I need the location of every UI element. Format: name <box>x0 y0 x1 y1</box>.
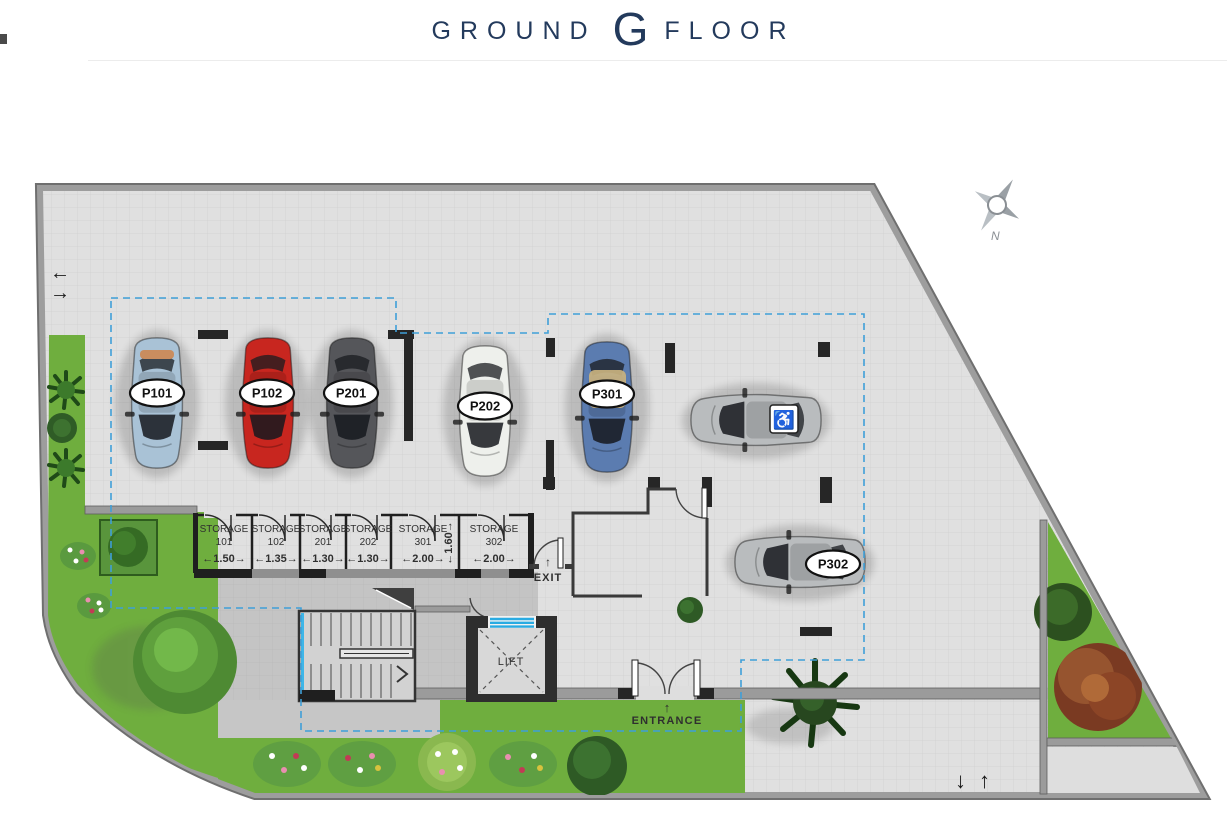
svg-text:←1.50→: ←1.50→ <box>202 553 245 565</box>
svg-text:P201: P201 <box>336 386 366 401</box>
entrance-door-leaf-right <box>694 660 700 696</box>
flower-cluster-1 <box>253 741 321 787</box>
entrance-label: ENTRANCE <box>632 715 703 727</box>
ramp-down-arrow: ↓ <box>955 768 966 793</box>
svg-text:P102: P102 <box>252 386 282 401</box>
svg-text:←1.30→: ←1.30→ <box>301 553 344 565</box>
title-ground: GROUND <box>431 17 596 46</box>
drive-in-arrow: ← <box>50 262 70 284</box>
svg-text:←1.60→: ←1.60→ <box>443 521 455 564</box>
svg-text:STORAGE: STORAGE <box>200 524 249 535</box>
svg-text:STORAGE: STORAGE <box>252 524 301 535</box>
lift: LIFT <box>466 616 557 702</box>
title-g-letter: G <box>613 6 649 52</box>
svg-text:←2.00→: ←2.00→ <box>472 553 515 565</box>
patio-paving <box>218 700 440 738</box>
svg-text:STORAGE: STORAGE <box>344 524 393 535</box>
flower-bed-west-1 <box>60 542 96 570</box>
compass-rose: N <box>959 166 1035 244</box>
svg-text:202: 202 <box>360 537 377 548</box>
svg-text:STORAGE: STORAGE <box>299 524 348 535</box>
spot-label-p101: P101 <box>130 380 184 407</box>
svg-text:P302: P302 <box>818 557 848 572</box>
svg-text:←2.00→: ←2.00→ <box>401 553 444 565</box>
svg-text:P202: P202 <box>470 399 500 414</box>
svg-text:101: 101 <box>216 537 233 548</box>
svg-text:102: 102 <box>268 537 285 548</box>
interior-plant <box>677 597 703 623</box>
svg-text:302: 302 <box>486 537 503 548</box>
flower-cluster-3 <box>489 741 557 787</box>
hedge-square <box>100 520 157 575</box>
exit-label: EXIT <box>534 572 562 584</box>
floor-plan-page: GROUND G FLOOR <box>0 0 1227 838</box>
header-divider <box>88 60 1227 61</box>
edge-mark <box>0 34 7 44</box>
svg-text:←1.35→: ←1.35→ <box>254 553 297 565</box>
lobby-door-leaf <box>702 488 707 518</box>
wheelchair-icon: ♿ <box>773 409 795 430</box>
svg-text:STORAGE: STORAGE <box>399 524 448 535</box>
svg-text:STORAGE: STORAGE <box>470 524 519 535</box>
svg-text:←1.30→: ←1.30→ <box>346 553 389 565</box>
spot-label-p302: P302 <box>806 551 860 578</box>
tree-large-sw <box>133 610 237 714</box>
compass-north-label: N <box>991 229 1000 243</box>
lift-door-stripes <box>490 619 534 627</box>
exit-door-leaf <box>558 538 563 568</box>
flower-bed-west-2 <box>77 593 111 619</box>
bush-west-highlight <box>53 419 71 437</box>
spot-label-p301: P301 <box>580 381 634 408</box>
topiary-bush <box>418 733 476 791</box>
east-wall <box>1040 520 1047 794</box>
dark-bush-south <box>567 736 627 796</box>
exit-arrow: ↑ <box>545 555 551 569</box>
entrance-arrow: ↑ <box>664 700 671 715</box>
svg-text:201: 201 <box>315 537 332 548</box>
svg-text:P301: P301 <box>592 387 622 402</box>
site-plan-svg: STORAGE 101 ←1.50→ STORAGE 102 ←1.35→ ST… <box>0 0 1227 838</box>
spot-label-p201: P201 <box>324 380 378 407</box>
svg-text:P101: P101 <box>142 386 172 401</box>
car-accessible <box>691 388 821 452</box>
spot-label-p202: P202 <box>458 393 512 420</box>
title-floor: FLOOR <box>664 17 795 46</box>
spot-label-p102: P102 <box>240 380 294 407</box>
paved-corner-se <box>1047 747 1200 793</box>
page-title: GROUND G FLOOR <box>0 0 1227 62</box>
svg-text:301: 301 <box>415 537 432 548</box>
ramp-up-arrow: ↑ <box>979 768 990 793</box>
drive-out-arrow: → <box>50 282 70 304</box>
lift-label: LIFT <box>498 656 525 668</box>
car-p101-roof-stripe <box>140 350 174 359</box>
flower-cluster-2 <box>328 741 396 787</box>
entrance-door-leaf-left <box>632 660 638 696</box>
